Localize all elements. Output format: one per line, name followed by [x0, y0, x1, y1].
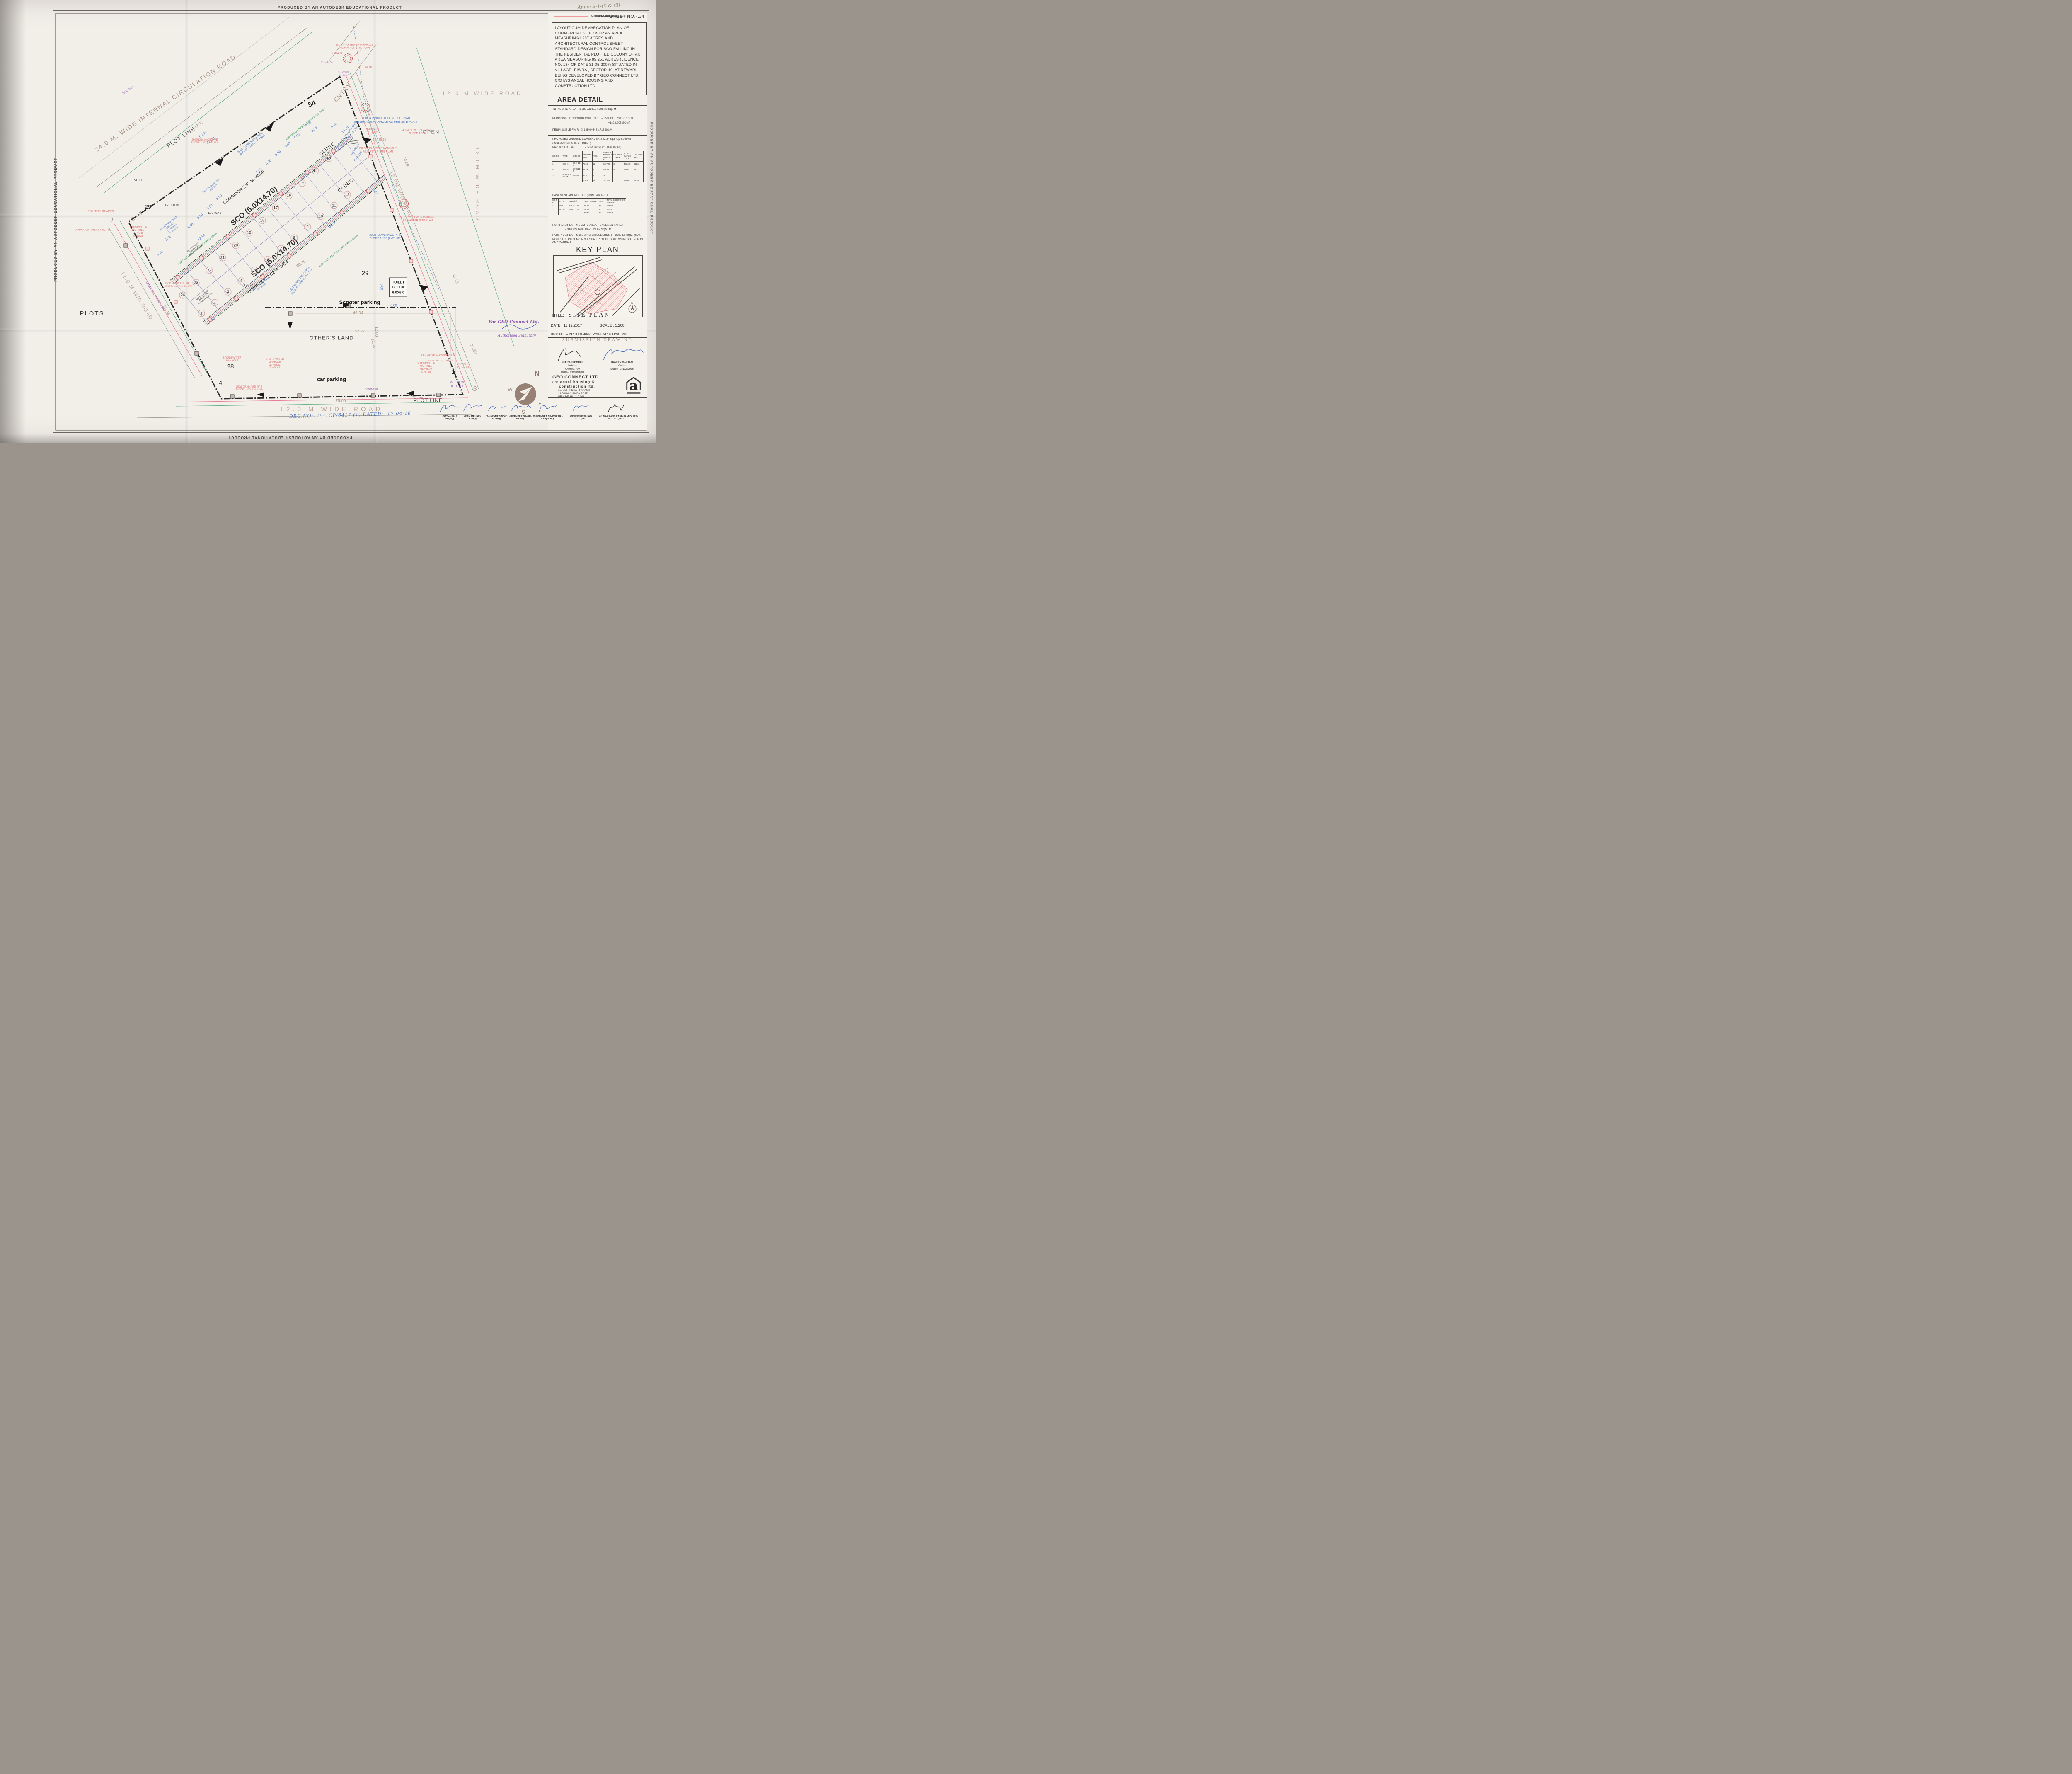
plan-label: 6.00	[380, 284, 383, 290]
title-label: TITLE:	[552, 313, 564, 318]
basement-table-row: TOTAL241480.10	[552, 211, 626, 215]
drg-no-cell: DRG.NO. = ARCH/1048/REWARI-AT/SCO/SUB/01	[548, 330, 647, 337]
plan-label: EXISTING SEWER MANHOLE AS/MASTER SITE PL…	[336, 43, 373, 49]
plan-label: CL =97.53	[321, 61, 333, 64]
plan-label: 28	[227, 363, 234, 371]
plan-label: 2	[211, 299, 218, 306]
ansal-logo-icon: a	[623, 376, 644, 397]
plan-label: 8	[291, 235, 298, 242]
plan-label: STORM WATER MANHOLE	[223, 357, 241, 363]
drawing-sheet: PRODUCED BY AN AUTODESK EDUCATIONAL PROD…	[0, 0, 656, 443]
plan-label: IL =94.37	[331, 52, 342, 56]
plan-label: 19	[246, 230, 253, 237]
plan-label: 52.27	[354, 329, 365, 334]
autodesk-banner-left: PRODUCED BY AN AUTODESK EDUCATIONAL PROD…	[53, 158, 58, 282]
legend-line-sample	[554, 16, 588, 17]
plan-label: N	[535, 371, 540, 378]
plan-label: 46.94	[353, 311, 363, 316]
area-detail-heading: AREA DETAIL	[548, 96, 647, 103]
signature-icon	[601, 401, 630, 415]
plan-label: LVL ±00	[133, 179, 143, 182]
plan-label: 1	[198, 310, 205, 317]
basement-table: SR. NO. TYPE SIZE (M) AREA IN SQM. NOS. …	[552, 198, 626, 215]
date-cell: DATE : 11.12.2017	[548, 321, 597, 330]
plan-label: 20	[232, 242, 240, 249]
plan-label: 12	[344, 191, 351, 199]
legend-item: SEWER LINE	[554, 13, 641, 19]
scale-cell: SCALE : 1:200	[597, 321, 647, 330]
plan-label: PLOTS	[80, 310, 104, 317]
area-table-row: 2.SCO-25.76X14.70 84.672169.34 3508.0228…	[552, 167, 644, 173]
plan-label: For GEO Connect Ltd.	[489, 320, 539, 325]
plan-label: LVL +0.45	[208, 212, 221, 215]
plan-label: 14	[312, 167, 319, 174]
key-plan-compass-icon: N	[629, 302, 636, 313]
plan-label: 17	[272, 205, 279, 212]
legend-label: SEWER LINE	[591, 15, 613, 18]
plan-label: 250Ø DRAINAGE PIPE SLOPE 1:200 (L=73.8M)	[191, 139, 218, 145]
plan-label: 200Ø SEWERAGE PIPE SLOPE 1:190 (L=21.6M)	[369, 234, 401, 241]
proposed-gc-note: (INCLUDING PUBLIC TOILET)	[548, 142, 647, 145]
plan-label: 16	[286, 192, 293, 199]
plan-label: Scooter parking	[339, 299, 380, 305]
plan-label: 12.00	[374, 326, 379, 337]
plan-label: 100Ø-158m.	[365, 388, 381, 392]
plan-label: 400Ø SEWERAGE PIPE SLOPE 1:300	[402, 128, 432, 135]
area-table-row: 3PUBLIC TOILET6.0X6.0 36.0136 1	[552, 173, 644, 179]
plan-label: 7	[278, 245, 285, 252]
signature-icon	[533, 401, 562, 415]
plan-label: LVL + 0.15	[165, 204, 179, 207]
svg-text:N: N	[631, 302, 633, 305]
plan-label: 29	[145, 204, 152, 211]
plan-label: 15	[299, 180, 306, 187]
plan-label: 22	[206, 267, 213, 274]
company-block: GEO CONNECT LTD. C/O ansal housing & con…	[548, 373, 647, 398]
ansal-name-1: ansal housing &	[560, 380, 595, 384]
plan-label: TOILET BLOCK 6.0X6.0	[389, 278, 407, 297]
plan-label: EXISTING SEWER MANHOLE AS/MASTER SITE PL…	[399, 216, 436, 222]
plan-label: RAIN WATER HARVESTING PIT	[421, 354, 454, 357]
title-block: SHEET NO.-1/4 LAYOUT CUM DEMARCATION PLA…	[548, 13, 647, 430]
signature-icon	[566, 401, 595, 415]
non-far-note: NON FAR AREA = MUMMTY AREA + BASEMENT AR…	[548, 224, 647, 227]
plan-label: GL=99.00 IL =94.52	[367, 128, 379, 134]
plan-label: LVL +0.45	[244, 284, 257, 288]
official-signature-block: (K. MAKRAND PANDURANG, IAS) DG,TCP (HR.)	[599, 401, 632, 420]
ansal-name-2: construction ltd.	[559, 384, 595, 388]
co-prefix: C/O	[552, 381, 559, 384]
plan-label: 11	[331, 202, 338, 209]
plan-label: 9	[304, 224, 311, 231]
plan-label: 1	[452, 368, 455, 376]
permissible-gc: PERMISSIBLE GROUND COVERAGE = 35% OF 520…	[548, 117, 647, 120]
plan-label: CL =95.93	[373, 138, 386, 142]
area-table-row: TOTAL251822.34 5359.02340.92	[552, 179, 644, 182]
parking-note: PARKING AREA ( INCLUDING CIRCULATION ) =…	[548, 234, 647, 237]
autodesk-banner-bottom: PRODUCED BY AN AUTODESK EDUCATIONAL PROD…	[228, 436, 352, 440]
signatory-cell: NAVEEN GAUTAM Owner Mobile.: 9811202936	[597, 343, 647, 373]
plan-label: RAIN WATER HARVESTING PIT	[74, 229, 111, 232]
plan-label: 24	[179, 292, 186, 299]
plan-label: 12.0M WIDE ROAD	[474, 147, 480, 222]
submission-stamp: SUBMISSION DRAWING	[548, 338, 647, 342]
signatory-cell: NEERAJ KOCHAR Architect CA/94/17709 Mobi…	[548, 343, 597, 373]
total-site-area: TOTAL SITE AREA = 1.287 ACRE / 5208.30 S…	[548, 108, 647, 111]
plan-label: 4	[238, 278, 245, 285]
plan-label: STORM WATER MANHOLE GL =98.00 IL =97.85	[417, 362, 435, 374]
official-signature-block: (JITENDER SIHAG) CTP (HR.)	[564, 401, 598, 420]
key-plan-map: N	[553, 255, 643, 317]
permissible-gc-2: =1822.905 SQMT	[548, 121, 647, 124]
plan-label: 10	[317, 213, 324, 220]
autodesk-banner-right-edge: PRODUCED BY AN AUTODESK EDUCATIONAL PROD…	[650, 122, 654, 235]
permissible-far: PERMISSIBLE F.A.R. @ 105%=5468.715 SQ.M	[548, 128, 647, 131]
plan-label: DESILTING CHAMBER	[428, 360, 453, 362]
plan-label: 12.0 M WIDE ROAD	[442, 91, 523, 97]
official-signature-block: (DEVENDRA NIMBOKAR ) STP(M) HQ.	[531, 401, 564, 420]
area-table: SR. NO. TYPE SIZE (M) AREA IN SQM. NOS. …	[552, 151, 644, 182]
plan-label: OUT FALL GL =97.81	[457, 364, 469, 369]
plan-label: W	[508, 387, 512, 393]
plan-label: GL =99.00 IL =97.57	[338, 71, 349, 77]
svg-text:a: a	[629, 378, 638, 394]
non-far-note-2: = 340.92+1480.10 =1821.02 SQM. M	[548, 228, 647, 231]
plan-label: 29	[362, 270, 369, 277]
plan-label: 6	[264, 256, 271, 263]
plan-label: car parking	[317, 376, 346, 382]
plan-label: DESILTING CHAMBER	[88, 210, 114, 213]
basement-table-row: 1.SCO-15.0 X 12.18 60.90221339.80	[552, 204, 626, 208]
plan-label: 250Ø DRAINAGE PIPE SLOPE 1:300 (L=15.4M)	[235, 386, 263, 392]
plan-label: 18	[259, 217, 266, 224]
basement-heading: BASEMENT AREA DETAIL (NON FAR AREA	[548, 194, 647, 197]
plan-label: 4	[219, 380, 222, 387]
plan-label: 75.09	[335, 399, 346, 404]
proposed-far: PROPOSED FAR. = 5359.02 sq.mt. (102.893%…	[548, 146, 647, 149]
signature-icon	[599, 344, 645, 361]
plan-label: Authorised Signatory	[498, 334, 536, 338]
plan-label: 250Ø DRAINAGE PIPE SLOPE 1:300 (L=61.3M)	[165, 282, 192, 288]
plan-label: 23	[193, 279, 200, 286]
plan-label: STORM WATER MANHOLE GL=99.15 IL =98.26	[129, 226, 147, 238]
plan-label: 3	[225, 288, 232, 296]
signature-icon	[506, 401, 535, 415]
key-plan-heading: KEY PLAN	[548, 245, 647, 254]
autodesk-banner-top: PRODUCED BY AN AUTODESK EDUCATIONAL PROD…	[278, 5, 402, 10]
signature-icon	[550, 344, 595, 361]
plan-label: 6.00	[390, 303, 397, 307]
plan-label: 5	[251, 267, 258, 274]
plan-label: OTHER'S LAND	[310, 334, 354, 341]
plan-label: CL =94.48	[358, 66, 372, 70]
title-value: SITE PLAN	[568, 312, 610, 319]
parking-warning: NOTE: THE PARKING AREA SHALL NOT BE SOLD…	[548, 238, 647, 244]
plan-label: 13	[325, 155, 332, 162]
proposed-gc: PROPOSED GROUND COVERAGE=1822.34 sq.mt.(…	[548, 138, 647, 141]
plan-label: 21	[219, 254, 226, 262]
area-table-row: 1.SCO-15.0 X 14.70 73.50221617.00 34851.…	[552, 161, 644, 167]
project-title: LAYOUT CUM DEMARCATION PLAN OF COMMERCIA…	[552, 22, 647, 95]
title-row: TITLE: SITE PLAN	[548, 312, 647, 319]
plan-label: 1	[110, 217, 114, 224]
plan-label: STORM WATER MANHOLE GL =98.11 IL =98.02	[266, 358, 284, 370]
plan-label: GL =98.50 IL =97.74	[450, 381, 464, 388]
plan-label: TO BE CONNECTED IN EXTERNAL SEWERAGE MAN…	[354, 116, 417, 124]
plan-label: 3	[473, 385, 477, 393]
plan-label: EXISTING SEWER MANHOLE AS/MASTER SITE PL…	[359, 147, 397, 153]
basement-table-row: 2.SCO-25.76X12.18 70.152140.30	[552, 208, 626, 211]
